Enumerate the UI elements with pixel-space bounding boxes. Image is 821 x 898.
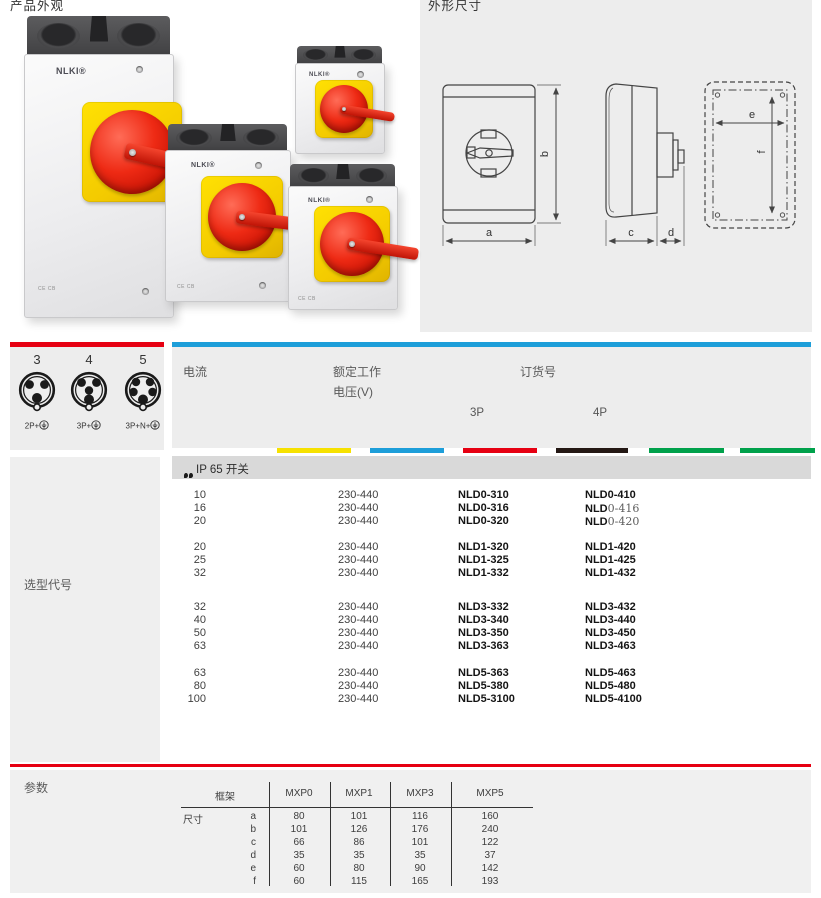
params-title: 参数	[24, 779, 48, 796]
current-value: 16	[172, 502, 206, 515]
current-value: 100	[172, 693, 206, 706]
earth-ground-icon	[91, 420, 101, 430]
params-dim-letter: b	[226, 824, 256, 835]
params-column-header: MXP5	[460, 788, 520, 799]
voltage-value: 230-440	[338, 515, 378, 528]
order-code-4p: NLD0-410	[585, 489, 636, 502]
section-title-product-appearance: 产品外观	[10, 0, 64, 14]
params-dim-letter: a	[226, 811, 256, 822]
dim-label-f: f	[756, 150, 768, 154]
params-value: 35	[329, 850, 389, 861]
pin-count-label: 3	[9, 352, 65, 367]
voltage-value: 230-440	[338, 680, 378, 693]
order-code-3p: NLD1-325	[458, 554, 509, 567]
catalog-page: 产品外观 外形尺寸 NLKI® CE CB NLKI® CE CB	[0, 0, 821, 898]
params-value: 240	[460, 824, 520, 835]
connector-label: 3P+N+	[115, 420, 171, 431]
current-value: 32	[172, 601, 206, 614]
current-value: 50	[172, 627, 206, 640]
order-code-3p: NLD5-3100	[458, 693, 515, 706]
order-code-3p: NLD5-363	[458, 667, 509, 680]
current-value: 32	[172, 567, 206, 580]
switch-plate	[201, 176, 283, 258]
current-value: 25	[172, 554, 206, 567]
current-value: 80	[172, 680, 206, 693]
product-box-large: NLKI® CE CB	[24, 16, 174, 318]
params-column-header: MXP0	[269, 788, 329, 799]
current-value: 20	[172, 515, 206, 528]
color-swatch	[463, 448, 537, 453]
voltage-value: 230-440	[338, 614, 378, 627]
order-code-3p: NLD1-320	[458, 541, 509, 554]
connector-plug-icon	[120, 367, 166, 413]
params-value: 101	[269, 824, 329, 835]
params-column-header: MXP3	[390, 788, 450, 799]
earth-ground-icon	[150, 420, 160, 430]
selection-rows: 10230-440NLD0-310NLD0-41016230-440NLD0-3…	[172, 456, 811, 762]
params-value: 115	[329, 876, 389, 887]
switch-plate	[315, 80, 373, 138]
params-value: 86	[329, 837, 389, 848]
cable-notch	[220, 124, 236, 141]
params-value: 142	[460, 863, 520, 874]
product-box-small: NLKI®	[295, 46, 385, 154]
header-order-no: 订货号	[520, 363, 556, 380]
certification-text: CE CB	[298, 296, 316, 302]
order-code-4p: NLD3-463	[585, 640, 636, 653]
order-code-3p: NLD1-332	[458, 567, 509, 580]
params-value: 80	[329, 863, 389, 874]
sidebar-label: 选型代号	[24, 576, 72, 593]
connector-plug-icon	[66, 367, 112, 413]
dim-label-e: e	[749, 109, 755, 121]
order-code-4p: NLD5-4100	[585, 693, 642, 706]
color-swatch	[556, 448, 628, 453]
rotary-knob[interactable]	[90, 110, 174, 194]
order-code-4p: NLD1-420	[585, 541, 636, 554]
order-code-3p: NLD0-316	[458, 502, 509, 515]
order-code-3p: NLD3-363	[458, 640, 509, 653]
header-col-3p: 3P	[470, 407, 484, 419]
params-value: 80	[269, 811, 329, 822]
cable-notch	[334, 46, 345, 58]
rotary-handle[interactable]	[339, 104, 394, 122]
order-code-4p: NLD5-480	[585, 680, 636, 693]
rotary-handle[interactable]	[346, 237, 419, 260]
brand-logo: NLKI®	[191, 162, 215, 169]
color-swatch	[649, 448, 724, 453]
earth-ground-icon	[39, 420, 49, 430]
table-vertical-divider	[451, 782, 452, 886]
certification-text: CE CB	[38, 286, 56, 292]
current-value: 10	[172, 489, 206, 502]
brand-logo: NLKI®	[309, 72, 330, 78]
connector-label: 3P+	[61, 420, 117, 431]
order-code-4p: NLD0-420	[585, 515, 639, 528]
order-code-3p: NLD0-320	[458, 515, 509, 528]
current-value: 40	[172, 614, 206, 627]
side-view: c d	[606, 84, 684, 246]
parameters-panel: 参数 框架MXP0MXP1MXP3MXP5尺寸a80101116160b1011…	[10, 770, 811, 893]
dim-label-a: a	[486, 227, 493, 239]
params-value: 122	[460, 837, 520, 848]
voltage-value: 230-440	[338, 693, 378, 706]
params-value: 193	[460, 876, 520, 887]
screw	[366, 196, 373, 203]
voltage-value: 230-440	[338, 567, 378, 580]
order-code-4p: NLD1-425	[585, 554, 636, 567]
params-dim-letter: d	[226, 850, 256, 861]
order-code-3p: NLD3-350	[458, 627, 509, 640]
dim-label-d: d	[668, 227, 674, 239]
connector-3-pin: 32P+	[9, 352, 65, 431]
connector-icons-cell: 32P+43P+53P+N+	[10, 347, 164, 450]
params-value: 101	[329, 811, 389, 822]
params-value: 37	[460, 850, 520, 861]
params-value: 101	[390, 837, 450, 848]
cable-notch	[90, 16, 109, 42]
red-divider-rule	[10, 764, 811, 767]
params-value: 60	[269, 876, 329, 887]
pin-count-label: 5	[115, 352, 171, 367]
table-header-underline	[181, 807, 533, 808]
voltage-value: 230-440	[338, 554, 378, 567]
color-swatch	[370, 448, 444, 453]
order-code-4p: NLD3-440	[585, 614, 636, 627]
color-swatch	[740, 448, 815, 453]
rotary-knob[interactable]	[320, 85, 369, 134]
header-col-4p: 4P	[593, 407, 607, 419]
section-title-outline-dimensions: 外形尺寸	[428, 0, 482, 14]
dim-label-b: b	[539, 151, 551, 157]
connector-label: 2P+	[9, 420, 65, 431]
cable-notch	[336, 164, 350, 179]
rotary-knob[interactable]	[320, 212, 384, 276]
product-box-medium-small: NLKI® CE CB	[288, 164, 398, 310]
voltage-value: 230-440	[338, 489, 378, 502]
brand-logo: NLKI®	[308, 197, 330, 204]
voltage-value: 230-440	[338, 502, 378, 515]
product-box-medium: NLKI® CE CB	[165, 124, 291, 302]
connector-plug-icon	[14, 367, 60, 413]
certification-text: CE CB	[177, 284, 195, 290]
order-code-3p: NLD3-332	[458, 601, 509, 614]
screw	[259, 282, 266, 289]
rear-mounting-view: e f	[705, 82, 795, 228]
voltage-value: 230-440	[338, 541, 378, 554]
params-value: 160	[460, 811, 520, 822]
params-value: 90	[390, 863, 450, 874]
pin-count-label: 4	[61, 352, 117, 367]
sidebar-cell: 选型代号	[10, 457, 160, 762]
params-value: 35	[269, 850, 329, 861]
order-code-4p: NLD1-432	[585, 567, 636, 580]
screw	[142, 288, 149, 295]
switch-plate	[314, 206, 390, 282]
params-dim-letter: f	[226, 876, 256, 887]
connector-5-pin: 53P+N+	[115, 352, 171, 431]
selection-table-header: 电流 额定工作 电压(V) 订货号 3P 4P	[172, 347, 811, 448]
params-frame-label: 框架	[195, 788, 255, 803]
connector-4-pin: 43P+	[61, 352, 117, 431]
params-column-header: MXP1	[329, 788, 389, 799]
order-code-3p: NLD3-340	[458, 614, 509, 627]
header-voltage-line1: 额定工作	[333, 363, 381, 380]
params-dim-letter: c	[226, 837, 256, 848]
header-current: 电流	[183, 363, 207, 380]
rotary-knob[interactable]	[208, 183, 277, 252]
params-value: 66	[269, 837, 329, 848]
current-value: 20	[172, 541, 206, 554]
voltage-value: 230-440	[338, 667, 378, 680]
voltage-value: 230-440	[338, 640, 378, 653]
dim-label-c: c	[628, 227, 634, 239]
screw	[136, 66, 143, 73]
order-code-3p: NLD0-310	[458, 489, 509, 502]
params-value: 60	[269, 863, 329, 874]
params-value: 176	[390, 824, 450, 835]
current-value: 63	[172, 640, 206, 653]
screw	[255, 162, 262, 169]
order-code-3p: NLD5-380	[458, 680, 509, 693]
header-voltage-line2: 电压(V)	[333, 383, 373, 400]
params-value: 126	[329, 824, 389, 835]
order-code-4p: NLD3-450	[585, 627, 636, 640]
order-code-4p: NLD3-432	[585, 601, 636, 614]
voltage-value: 230-440	[338, 601, 378, 614]
voltage-value: 230-440	[338, 627, 378, 640]
current-value: 63	[172, 667, 206, 680]
order-code-4p: NLD0-416	[585, 502, 639, 515]
brand-logo: NLKI®	[56, 66, 86, 76]
params-value: 35	[390, 850, 450, 861]
params-dim-letter: e	[226, 863, 256, 874]
dimension-drawing: b a c d	[420, 0, 812, 332]
order-code-4p: NLD5-463	[585, 667, 636, 680]
params-size-label: 尺寸	[183, 811, 203, 826]
screw	[357, 71, 364, 78]
params-value: 116	[390, 811, 450, 822]
front-view: b a	[443, 85, 561, 246]
params-value: 165	[390, 876, 450, 887]
color-swatch	[277, 448, 351, 453]
